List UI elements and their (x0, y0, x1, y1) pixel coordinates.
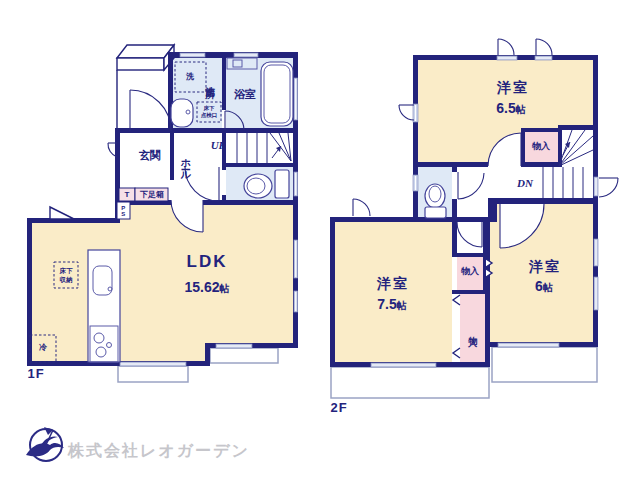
room-65-label: 洋室 (497, 80, 529, 95)
bathtub-icon (261, 62, 293, 126)
room-75-area (335, 222, 452, 362)
ldk-label: LDK (187, 253, 228, 271)
inspection-label-2: 点検口 (201, 113, 218, 119)
fixtures-2f (425, 184, 446, 218)
fridge-label: 冷 (39, 344, 47, 352)
casement-arc-top2 (536, 39, 552, 55)
casement-arc-stairs (599, 178, 618, 197)
hall-label: ホール (180, 151, 191, 177)
floor-plan-drawing (0, 0, 640, 480)
t-label: T (125, 191, 130, 199)
company-logo (26, 427, 64, 461)
stairs-dn-label: DN (517, 178, 533, 190)
floor-plan-page: LDK 15.62帖 玄関 ホール 洗面所 浴室 洗 床下 点検口 床下 収納 … (0, 0, 640, 480)
entrance-label: 玄関 (139, 150, 161, 162)
ldk-window-shutter (50, 207, 74, 219)
closet-mid-label: 物入 (461, 267, 479, 276)
washer-label: 洗 (186, 73, 194, 81)
washroom-label: 洗面所 (205, 80, 215, 83)
balcony-right (492, 347, 597, 382)
casement-arc-75 (353, 199, 370, 216)
casement-arc-left (399, 105, 414, 120)
room-75-size-label: 7.5帖 (377, 296, 406, 313)
stairs-up-label: UP (211, 140, 226, 152)
toilet-2f-icon (425, 184, 445, 208)
terrace-1f-right (210, 348, 278, 363)
room-6-label: 洋室 (529, 259, 561, 274)
balcony-left (331, 367, 489, 398)
terrace-1f-left (118, 366, 188, 382)
pipe-space-label: PS (120, 205, 126, 217)
floor1-label: 1F (27, 367, 44, 381)
kitchen-counter-icon (88, 250, 120, 362)
floor2-label: 2F (330, 401, 347, 415)
underfloor-label-1: 床下 (60, 268, 73, 275)
casement-arc-top1 (498, 39, 514, 55)
toilet-1f-icon (244, 174, 272, 198)
underfloor-label-2: 収納 (60, 277, 73, 284)
closet-low-label: 物入 (467, 329, 476, 331)
floor-2f (330, 39, 618, 398)
room-6-size-label: 6帖 (535, 278, 553, 295)
nook-door-arc (457, 222, 482, 247)
closet-low-area (460, 294, 485, 362)
shoebox-label: 下足箱 (140, 191, 164, 199)
room-65-size-label: 6.5帖 (496, 100, 525, 117)
floor-1f (27, 45, 298, 382)
bathroom-label: 浴室 (234, 89, 256, 101)
room-75-label: 洋室 (377, 276, 409, 291)
company-name: 株式会社レオガーデン (68, 441, 250, 462)
inspection-label-1: 床下 (204, 106, 215, 112)
closet-top-label: 物入 (532, 142, 550, 151)
entrance-porch-canopy (117, 45, 174, 131)
toilet-2f-door-arc (458, 173, 484, 199)
ldk-size-label: 15.62帖 (184, 279, 229, 296)
entrance-door-arc (130, 90, 171, 131)
stairs-1f (237, 133, 291, 163)
